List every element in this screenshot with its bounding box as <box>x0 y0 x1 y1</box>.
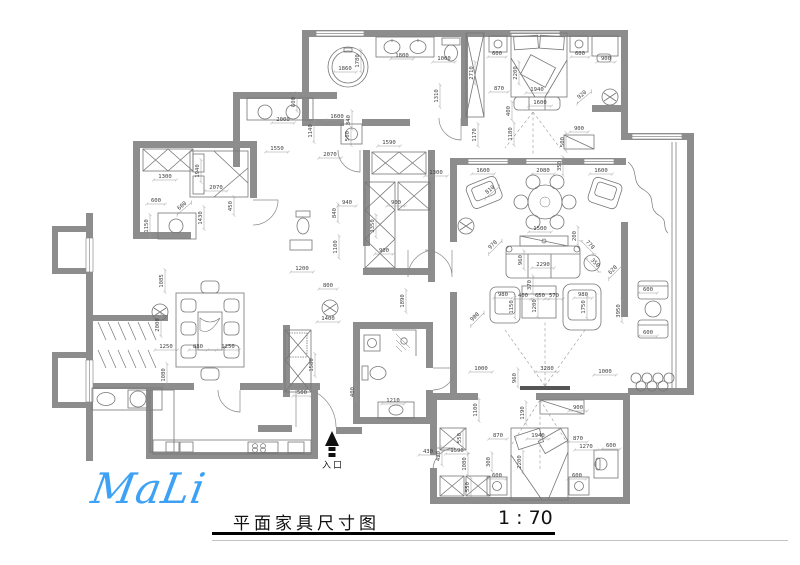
dim-label: 900 <box>601 56 611 62</box>
dim-label: 2000 <box>155 318 161 331</box>
logo: MaLi <box>88 464 210 513</box>
dim-label: 2000 <box>276 117 289 123</box>
living-armchair-left <box>465 175 504 210</box>
dim-label: 1250 <box>159 344 172 350</box>
sight-lines <box>505 112 585 470</box>
plant <box>602 89 618 105</box>
dim-label: 1150 <box>509 300 515 313</box>
dim-label: 840 <box>332 208 338 218</box>
dim-label: 1000 <box>598 369 611 375</box>
dim-label: 3280 <box>540 366 553 372</box>
dim-label: 400 <box>518 293 528 299</box>
dim-label: 1580 <box>309 358 315 371</box>
dim-label: 1300 <box>429 170 442 176</box>
dim-label: 1200 <box>295 266 308 272</box>
desk-bottom-right <box>594 450 618 478</box>
dim-label: 550 <box>457 433 463 443</box>
dim-label: 1430 <box>198 211 204 224</box>
balcony-table <box>645 301 661 317</box>
dim-label: 770 <box>584 240 595 251</box>
dim-label: 920 <box>577 90 589 101</box>
dim-label: 2070 <box>323 152 336 158</box>
dim-label: 1310 <box>434 89 440 102</box>
dim-label: 1400 <box>321 316 334 322</box>
tv-cabinet-living <box>520 236 568 246</box>
dim-label: 620 <box>608 265 619 276</box>
bathroom-bottom <box>362 330 416 418</box>
dim-label: 3950 <box>616 304 622 317</box>
dim-label: 2200 <box>513 66 519 79</box>
dim-label: 1000 <box>437 56 450 62</box>
dim-label: 900 <box>391 200 401 206</box>
dim-label: 1100 <box>473 403 479 416</box>
dim-label: 370 <box>527 280 533 290</box>
dim-label: 500 <box>297 390 307 396</box>
dim-label: 2070 <box>209 185 222 191</box>
dining-table-round <box>514 175 576 229</box>
dim-label: 900 <box>573 405 583 411</box>
dim-label: 600 <box>606 443 616 449</box>
dim-label: 3350 <box>370 219 376 232</box>
dim-label: 1550 <box>270 146 283 152</box>
dim-label: 2710 <box>469 66 475 79</box>
dim-label: 1600 <box>594 168 607 174</box>
dim-label: 1600 <box>330 114 343 120</box>
dim-label: 600 <box>643 287 653 293</box>
dim-label: 600 <box>151 198 161 204</box>
dim-label: 1500 <box>533 226 546 232</box>
dim-label: 2290 <box>536 262 549 268</box>
dim-label: 600 <box>572 473 582 479</box>
dim-label: 500 <box>345 131 351 141</box>
floorplan-canvas: 1860178018001000131027101170600600900220… <box>0 0 800 565</box>
drawing-title: 平面家具尺寸图 <box>233 509 380 534</box>
dim-label: 400 <box>506 106 512 116</box>
dim-label: 1170 <box>472 128 478 141</box>
tv-wall-living <box>520 386 570 390</box>
dim-label: 1800 <box>395 53 408 59</box>
dim-label: 200 <box>572 231 578 241</box>
dim-label: 400 <box>350 387 356 397</box>
cabinet-top-right <box>564 135 594 149</box>
curtain-curve <box>628 162 668 233</box>
dim-label: 500 <box>560 137 566 147</box>
dim-label: 1150 <box>144 219 150 232</box>
dim-label: 900 <box>470 312 481 323</box>
dim-label: 1890 <box>400 294 406 307</box>
dim-label: 960 <box>512 373 518 383</box>
dim-label: 1190 <box>520 406 526 419</box>
dim-label: 970 <box>488 240 499 251</box>
dim-label: 870 <box>494 86 504 92</box>
dim-label: 1940 <box>530 87 543 93</box>
balcony-railing <box>672 142 676 388</box>
dim-label: 600 <box>492 473 502 479</box>
dim-label: 1780 <box>355 54 361 67</box>
dim-label: 1600 <box>533 100 546 106</box>
dim-label: 1750 <box>581 300 587 313</box>
dim-label: 1080 <box>161 368 167 381</box>
dim-label: 2080 <box>536 168 549 174</box>
dim-label: 1200 <box>532 299 538 312</box>
entrance-marker: 入口 <box>322 431 344 471</box>
dim-label: 1100 <box>333 240 339 253</box>
wardrobe-left-bedroom <box>143 149 193 171</box>
entrance-label: 入口 <box>322 460 344 471</box>
dim-label: 1590 <box>450 448 463 454</box>
dim-label: 600 <box>492 51 502 57</box>
dim-label: 900 <box>574 126 584 132</box>
kitchen-counter <box>150 390 311 454</box>
dim-label: 1860 <box>338 66 351 72</box>
dim-label: 650 <box>535 293 545 299</box>
dim-label: 900 <box>379 248 389 254</box>
dim-label: 430 <box>423 449 433 455</box>
dim-label: 1940 <box>531 433 544 439</box>
dim-label: 840 <box>346 115 352 125</box>
plant <box>458 218 474 234</box>
dim-label: 1140 <box>308 124 314 137</box>
dim-label: 1300 <box>158 174 171 180</box>
dim-label: 570 <box>549 293 559 299</box>
windows <box>86 31 682 402</box>
dining-table-left <box>176 281 244 380</box>
nightstand <box>489 36 507 52</box>
title-underline <box>212 532 555 535</box>
dim-label: 2200 <box>517 455 523 468</box>
dim-label: 600 <box>291 97 297 107</box>
nightstand <box>569 477 589 495</box>
dim-label: 600 <box>177 201 189 212</box>
dim-label: 1600 <box>476 168 489 174</box>
dim-label: 1210 <box>386 398 399 404</box>
dim-label: 1250 <box>221 344 234 350</box>
dim-label: 960 <box>518 255 524 265</box>
drawing-scale: 1 : 70 <box>498 507 553 529</box>
dim-label: 980 <box>498 292 508 298</box>
dim-label: 350 <box>557 161 563 171</box>
dim-label: 870 <box>573 436 583 442</box>
dim-label: 880 <box>193 344 203 350</box>
title-underline-thin <box>212 540 788 541</box>
toilet-mid-bathroom <box>290 211 312 250</box>
coat-hangers <box>98 322 156 368</box>
dim-label: 1270 <box>579 444 592 450</box>
dim-label: 1085 <box>159 274 165 287</box>
dim-label: 940 <box>342 200 352 206</box>
nightstand <box>570 36 588 52</box>
dim-label: 1940 <box>195 164 201 177</box>
dim-label: 550 <box>465 482 471 492</box>
dim-label: 1180 <box>508 127 514 140</box>
dim-label: 1590 <box>382 140 395 146</box>
dim-label: 450 <box>228 201 234 211</box>
plant <box>322 300 338 316</box>
dim-label: 300 <box>486 457 492 467</box>
dim-label: 1000 <box>474 366 487 372</box>
dim-label: 800 <box>323 283 333 289</box>
dim-label: 600 <box>643 330 653 336</box>
dim-label: 870 <box>493 433 503 439</box>
dim-label: 600 <box>575 51 585 57</box>
living-armchair-right <box>587 176 624 210</box>
hall-closets <box>365 152 430 268</box>
dim-label: 420 <box>436 451 442 461</box>
dim-label: 1080 <box>462 457 468 470</box>
